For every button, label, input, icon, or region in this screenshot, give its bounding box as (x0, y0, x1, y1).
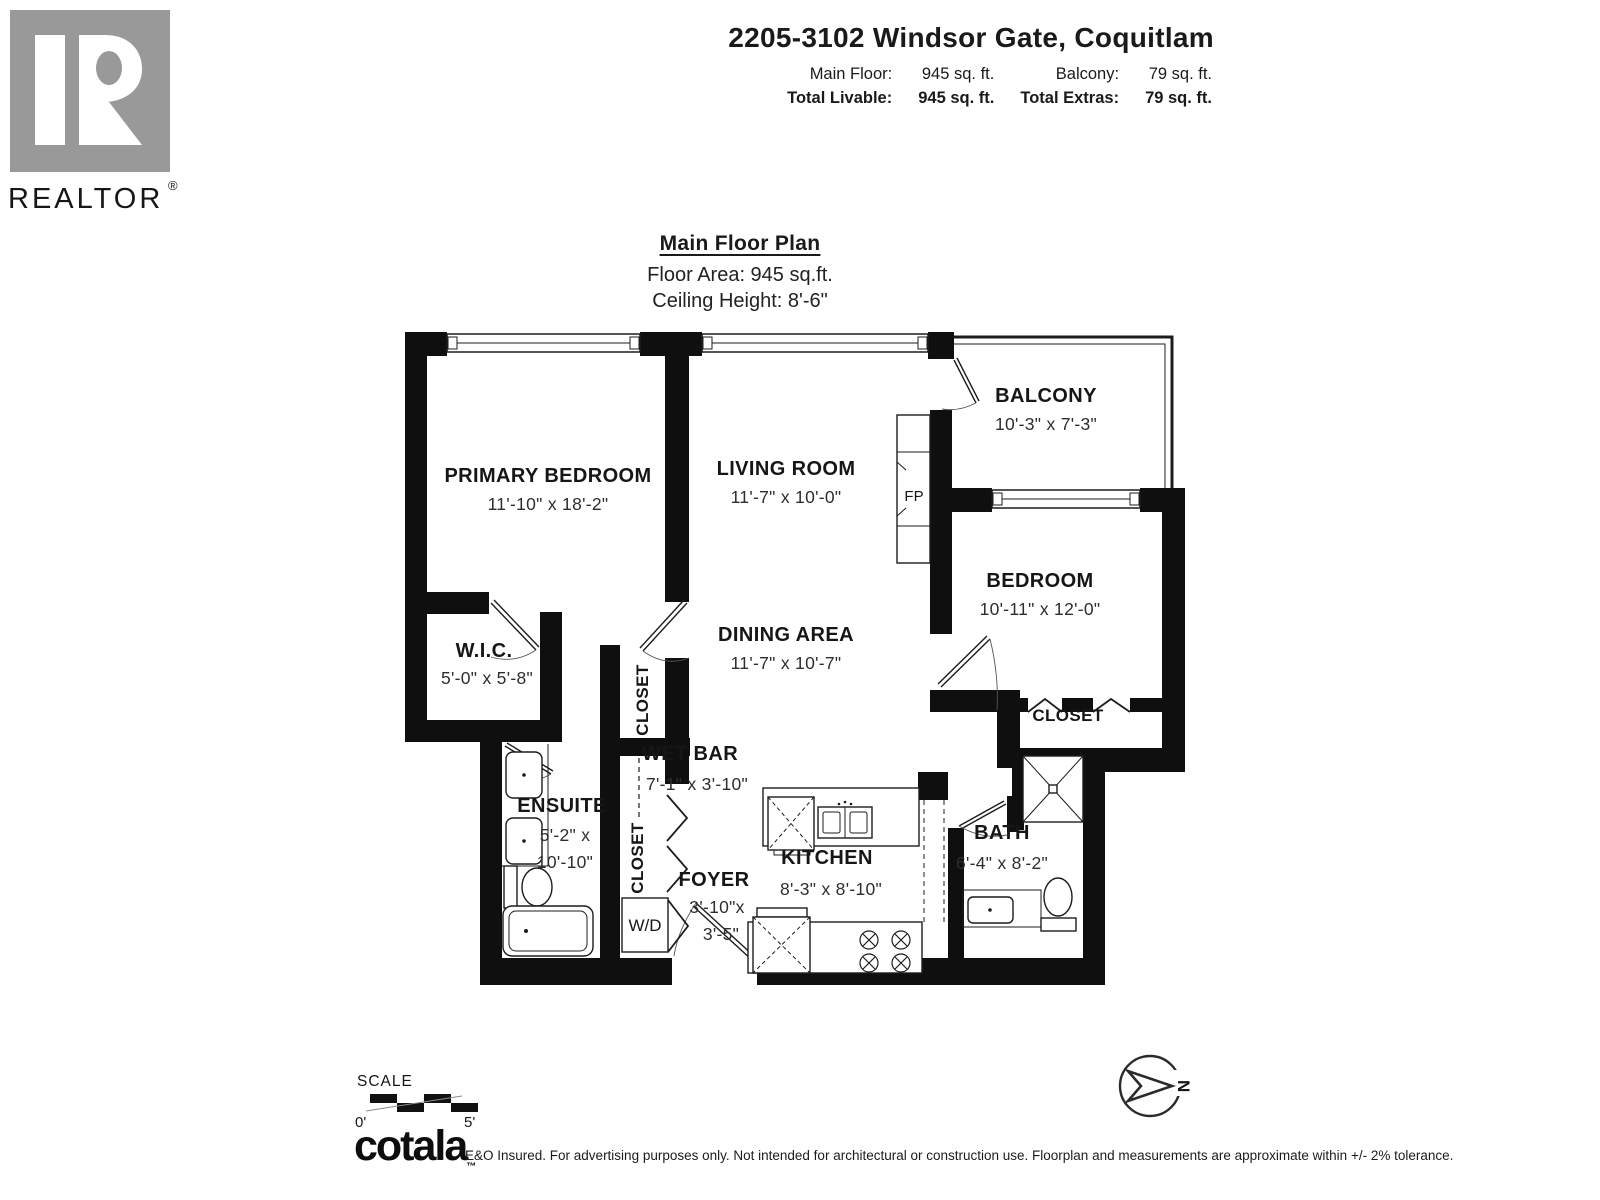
compass-north-label: N (1174, 1080, 1193, 1092)
primary-bedroom-dims: 11'-10" x 18'-2" (488, 494, 609, 514)
cotala-logo: cotala™ (354, 1122, 476, 1173)
foyer-dims-1: 3'-10"x (689, 897, 744, 917)
living-room-label: LIVING ROOM (717, 458, 856, 480)
registered-mark: ® (168, 178, 178, 193)
dining-area-dims: 11'-7" x 10'-7" (731, 653, 842, 673)
fireplace: FP (897, 415, 930, 563)
bath-vanity (963, 890, 1041, 927)
stat-label: Total Livable: (787, 86, 892, 110)
disclaimer-text: E&O Insured. For advertising purposes on… (465, 1148, 1453, 1163)
shower (1023, 756, 1083, 822)
plan-title: Main Floor Plan (480, 232, 1000, 256)
wic-dims: 5'-0" x 5'-8" (441, 668, 533, 688)
wic-label: W.I.C. (456, 640, 513, 662)
plan-floor-area: Floor Area: 945 sq.ft. (480, 262, 1000, 288)
stat-value: 79 sq. ft. (1145, 62, 1212, 86)
bedroom-dims: 10'-11" x 12'-0" (980, 599, 1101, 619)
ensuite-sink-1 (506, 752, 542, 798)
plan-header: Main Floor Plan Floor Area: 945 sq.ft. C… (480, 232, 1000, 314)
window-primary-bedroom (447, 334, 640, 352)
balcony-dims: 10'-3" x 7'-3" (995, 414, 1097, 434)
scale-label: SCALE (357, 1073, 413, 1090)
ensuite-fixtures (502, 744, 593, 956)
ensuite-label: ENSUITE (517, 795, 606, 817)
stat-value: 945 sq. ft. (918, 62, 994, 86)
window-bedroom (992, 490, 1140, 508)
stat-label: Main Floor: (787, 62, 892, 86)
kitchen-counter-edge (924, 800, 944, 922)
plan-ceiling-height: Ceiling Height: 8'-6" (480, 288, 1000, 314)
trademark-symbol: ™ (466, 1162, 476, 1173)
listing-address-title: 2205-3102 Windsor Gate, Coquitlam (728, 22, 1214, 54)
dining-closet-label: CLOSET (633, 664, 652, 736)
window-living-room (702, 334, 928, 352)
dishwasher (753, 908, 810, 973)
primary-bedroom-door (640, 600, 689, 661)
balcony-door (942, 358, 979, 410)
bedroom-closet-label: CLOSET (1032, 706, 1104, 725)
stat-value: 79 sq. ft. (1145, 86, 1212, 110)
hall-closet-label: CLOSET (628, 822, 647, 894)
fireplace-label: FP (904, 488, 923, 505)
floor-plan-drawing: FP (390, 315, 1190, 1005)
stat-label: Total Extras: (1020, 86, 1119, 110)
wet-bar-dims: 7'-1" x 3'-10" (646, 774, 748, 794)
floor-plan-page: REALTOR ® 2205-3102 Windsor Gate, Coquit… (0, 0, 1600, 1200)
kitchen-label: KITCHEN (781, 847, 873, 869)
compass: N (1108, 1044, 1203, 1134)
foyer-label: FOYER (679, 869, 750, 891)
kitchen-dims: 8'-3" x 8'-10" (780, 879, 882, 899)
bedroom-label: BEDROOM (986, 570, 1093, 592)
ensuite-toilet (504, 866, 552, 908)
bath-label: BATH (974, 822, 1030, 844)
ensuite-dims-1: 5'-2" x (540, 825, 591, 845)
washer-dryer: W/D (622, 898, 668, 952)
balcony-label: BALCONY (995, 385, 1097, 407)
washer-dryer-label: W/D (628, 916, 661, 935)
primary-bedroom-label: PRIMARY BEDROOM (444, 465, 651, 487)
realtor-logo-text: REALTOR (8, 183, 163, 215)
stat-value: 945 sq. ft. (918, 86, 994, 110)
bathtub (503, 906, 593, 956)
cotala-logo-text: cotala (354, 1122, 466, 1170)
foyer-dims-2: 3'-5" (703, 924, 739, 944)
ensuite-dims-2: 10'-10" (537, 852, 593, 872)
bath-dims: 6'-4" x 8'-2" (956, 853, 1048, 873)
wet-bar-label: WET BAR (642, 743, 738, 765)
north-arrow-icon (1128, 1071, 1172, 1101)
realtor-logo: REALTOR ® (8, 8, 198, 223)
dining-area-label: DINING AREA (718, 624, 854, 646)
scale-bar-segments (370, 1094, 478, 1112)
area-stats: Main Floor: 945 sq. ft. Balcony: 79 sq. … (787, 62, 1212, 110)
bath-toilet (1041, 878, 1076, 931)
realtor-logo-r (35, 35, 142, 145)
living-room-dims: 11'-7" x 10'-0" (731, 487, 842, 507)
stat-label: Balcony: (1020, 62, 1119, 86)
